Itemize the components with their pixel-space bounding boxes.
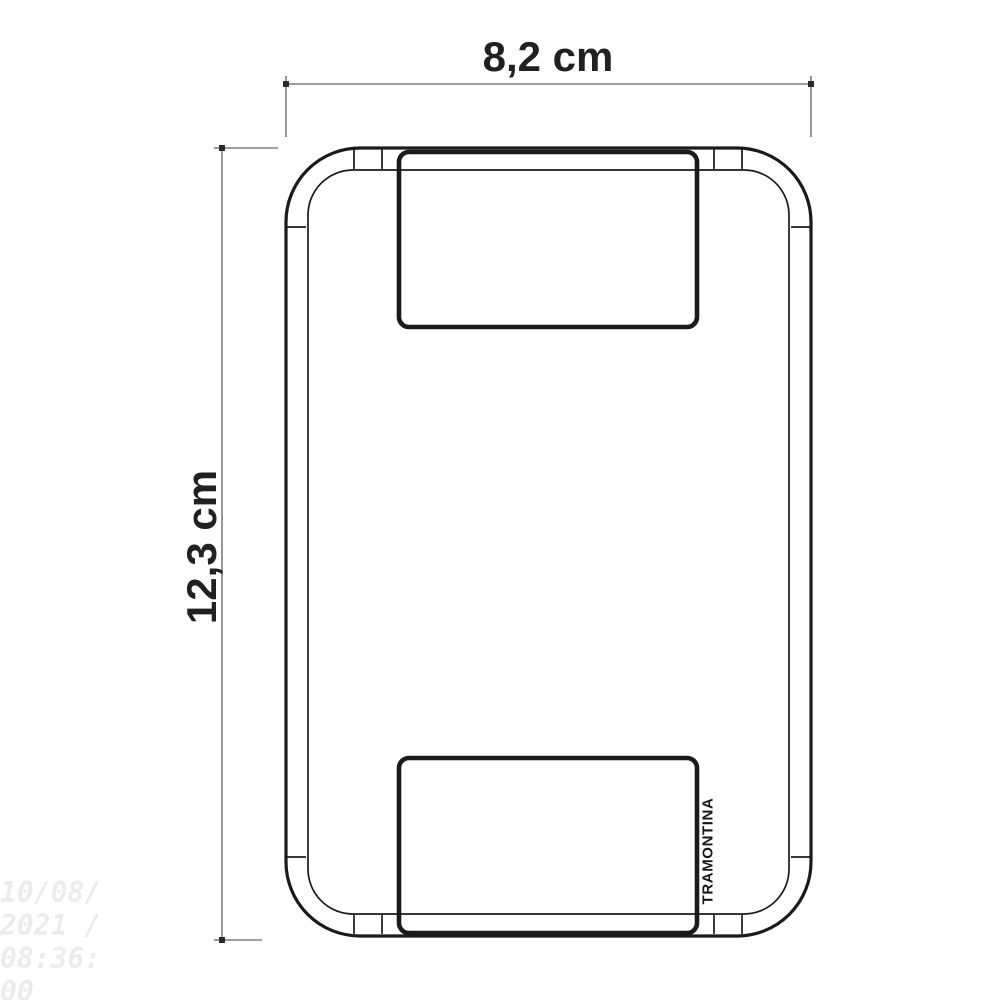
width-dim-right-dot bbox=[808, 81, 814, 87]
plate-technical-drawing bbox=[0, 0, 1000, 1000]
top-module-opening bbox=[399, 152, 697, 327]
height-dimension-label: 12,3 cm bbox=[178, 470, 226, 624]
plate-inner-outline bbox=[308, 170, 789, 914]
plate-outer-outline bbox=[286, 148, 811, 936]
width-dimension-lines bbox=[286, 76, 811, 137]
height-dim-bottom-dot bbox=[219, 937, 225, 943]
width-dim-left-dot bbox=[283, 81, 289, 87]
watermark-line: 10/08/ bbox=[0, 876, 101, 909]
brand-logo-text: TRAMONTINA bbox=[700, 798, 717, 905]
bottom-module-opening bbox=[399, 758, 697, 933]
watermark-line: 08:36: bbox=[0, 942, 101, 975]
width-dimension-label: 8,2 cm bbox=[483, 33, 614, 81]
plate-outline-group bbox=[286, 148, 811, 936]
timestamp-watermark: 10/08/ 2021 / 08:36: 00 bbox=[0, 876, 101, 1000]
drawing-canvas: 8,2 cm 12,3 cm TRAMONTINA 10/08/ 2021 / … bbox=[0, 0, 1000, 1000]
watermark-line: 2021 / bbox=[0, 909, 101, 942]
height-dim-top-dot bbox=[219, 145, 225, 151]
rim-transition-ticks bbox=[287, 149, 810, 934]
watermark-line: 00 bbox=[0, 975, 101, 1000]
